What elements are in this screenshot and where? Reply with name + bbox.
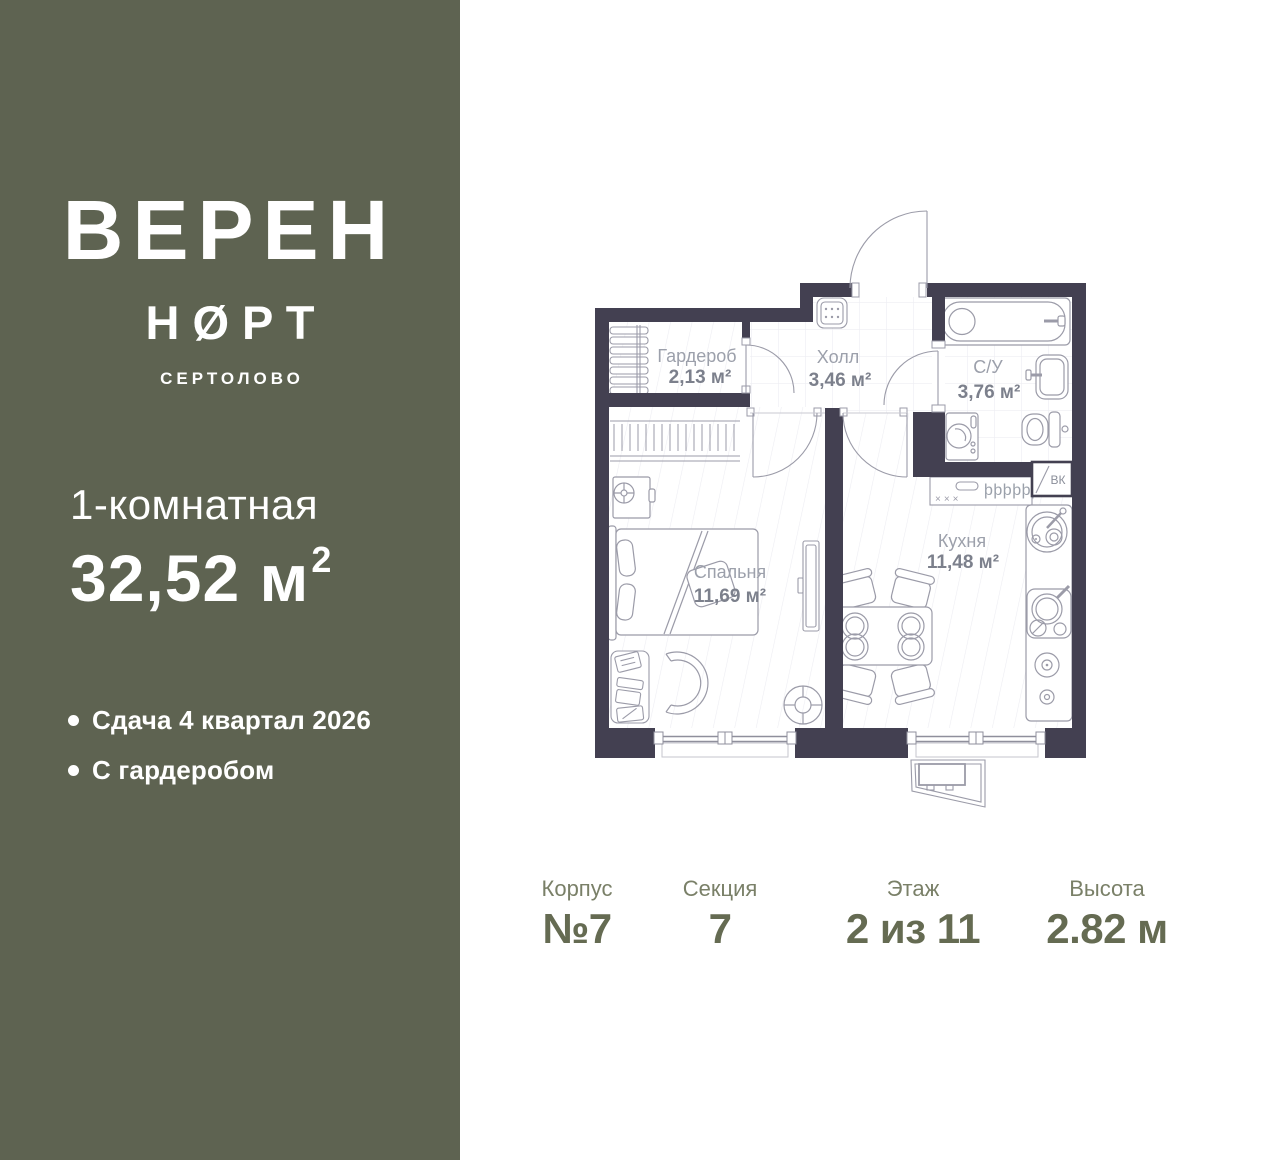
- balcony: [911, 760, 985, 807]
- room-area-wardrobe: 2,13 м²: [669, 367, 732, 388]
- utility-shaft: ВК: [1032, 462, 1072, 496]
- brand-logo-line2: НØРТ: [0, 299, 460, 346]
- room-name-hall: Холл: [817, 347, 859, 367]
- room-area-kitchen: 11,48 м²: [927, 552, 999, 573]
- info-building-value: №7: [542, 905, 613, 953]
- room-area-bedroom: 11,69 м²: [694, 586, 766, 607]
- info-section-value: 7: [683, 905, 758, 953]
- room-area-hall: 3,46 м²: [809, 370, 872, 391]
- info-height-value: 2.82 м: [1046, 905, 1167, 953]
- feature-item: С гардеробом: [68, 755, 371, 786]
- doormat: [817, 298, 847, 328]
- kitchen-window: [907, 728, 1045, 758]
- room-name-wardrobe: Гардероб: [657, 346, 736, 366]
- info-height: Высота 2.82 м: [1046, 876, 1167, 953]
- nightstand: [613, 477, 655, 518]
- kitchen-counter: [1026, 505, 1072, 721]
- room-name-bathroom: С/У: [973, 357, 1003, 377]
- apartment-area-value: 32,52 м: [70, 541, 309, 615]
- feature-label: С гардеробом: [92, 755, 274, 786]
- feature-label: Сдача 4 квартал 2026: [92, 705, 371, 736]
- sidebar: ВЕРЕН НØРТ СЕРТОЛОВО 1-комнатная 32,52 м…: [0, 0, 460, 1160]
- brand-city: СЕРТОЛОВО: [0, 369, 460, 389]
- floor-plan-svg: ××× þþþþþþ: [590, 195, 1090, 815]
- bed: [608, 526, 758, 640]
- room-area-bathroom: 3,76 м²: [958, 382, 1021, 403]
- info-section-label: Секция: [683, 876, 758, 902]
- info-floor-label: Этаж: [846, 876, 980, 902]
- stove-knob-marks: ×××: [935, 494, 962, 505]
- shaft-label: ВК: [1051, 473, 1066, 487]
- info-section: Секция 7: [683, 876, 758, 953]
- feature-item: Сдача 4 квартал 2026: [68, 705, 371, 736]
- bullet-icon: [68, 715, 79, 726]
- room-name-kitchen: Кухня: [938, 531, 986, 551]
- entry-door: [850, 211, 927, 288]
- info-building-label: Корпус: [542, 876, 613, 902]
- cooktop: [1027, 586, 1071, 638]
- floor-plan: ××× þþþþþþ: [590, 195, 1090, 815]
- info-floor: Этаж 2 из 11: [846, 876, 980, 953]
- washing-machine: [946, 413, 978, 460]
- bedroom-window: [654, 728, 796, 758]
- feature-list: Сдача 4 квартал 2026 С гардеробом: [68, 705, 371, 805]
- brand-logo-line1: ВЕРЕН: [0, 188, 460, 272]
- info-building: Корпус №7: [542, 876, 613, 953]
- info-floor-value: 2 из 11: [846, 905, 980, 953]
- bullet-icon: [68, 765, 79, 776]
- bathtub: [938, 298, 1070, 345]
- room-name-bedroom: Спальня: [694, 562, 766, 582]
- apartment-type: 1-комнатная: [70, 481, 318, 529]
- info-height-label: Высота: [1046, 876, 1167, 902]
- desk: [611, 651, 649, 723]
- apartment-area: 32,52 м2: [70, 540, 330, 616]
- apartment-area-sup: 2: [311, 539, 332, 580]
